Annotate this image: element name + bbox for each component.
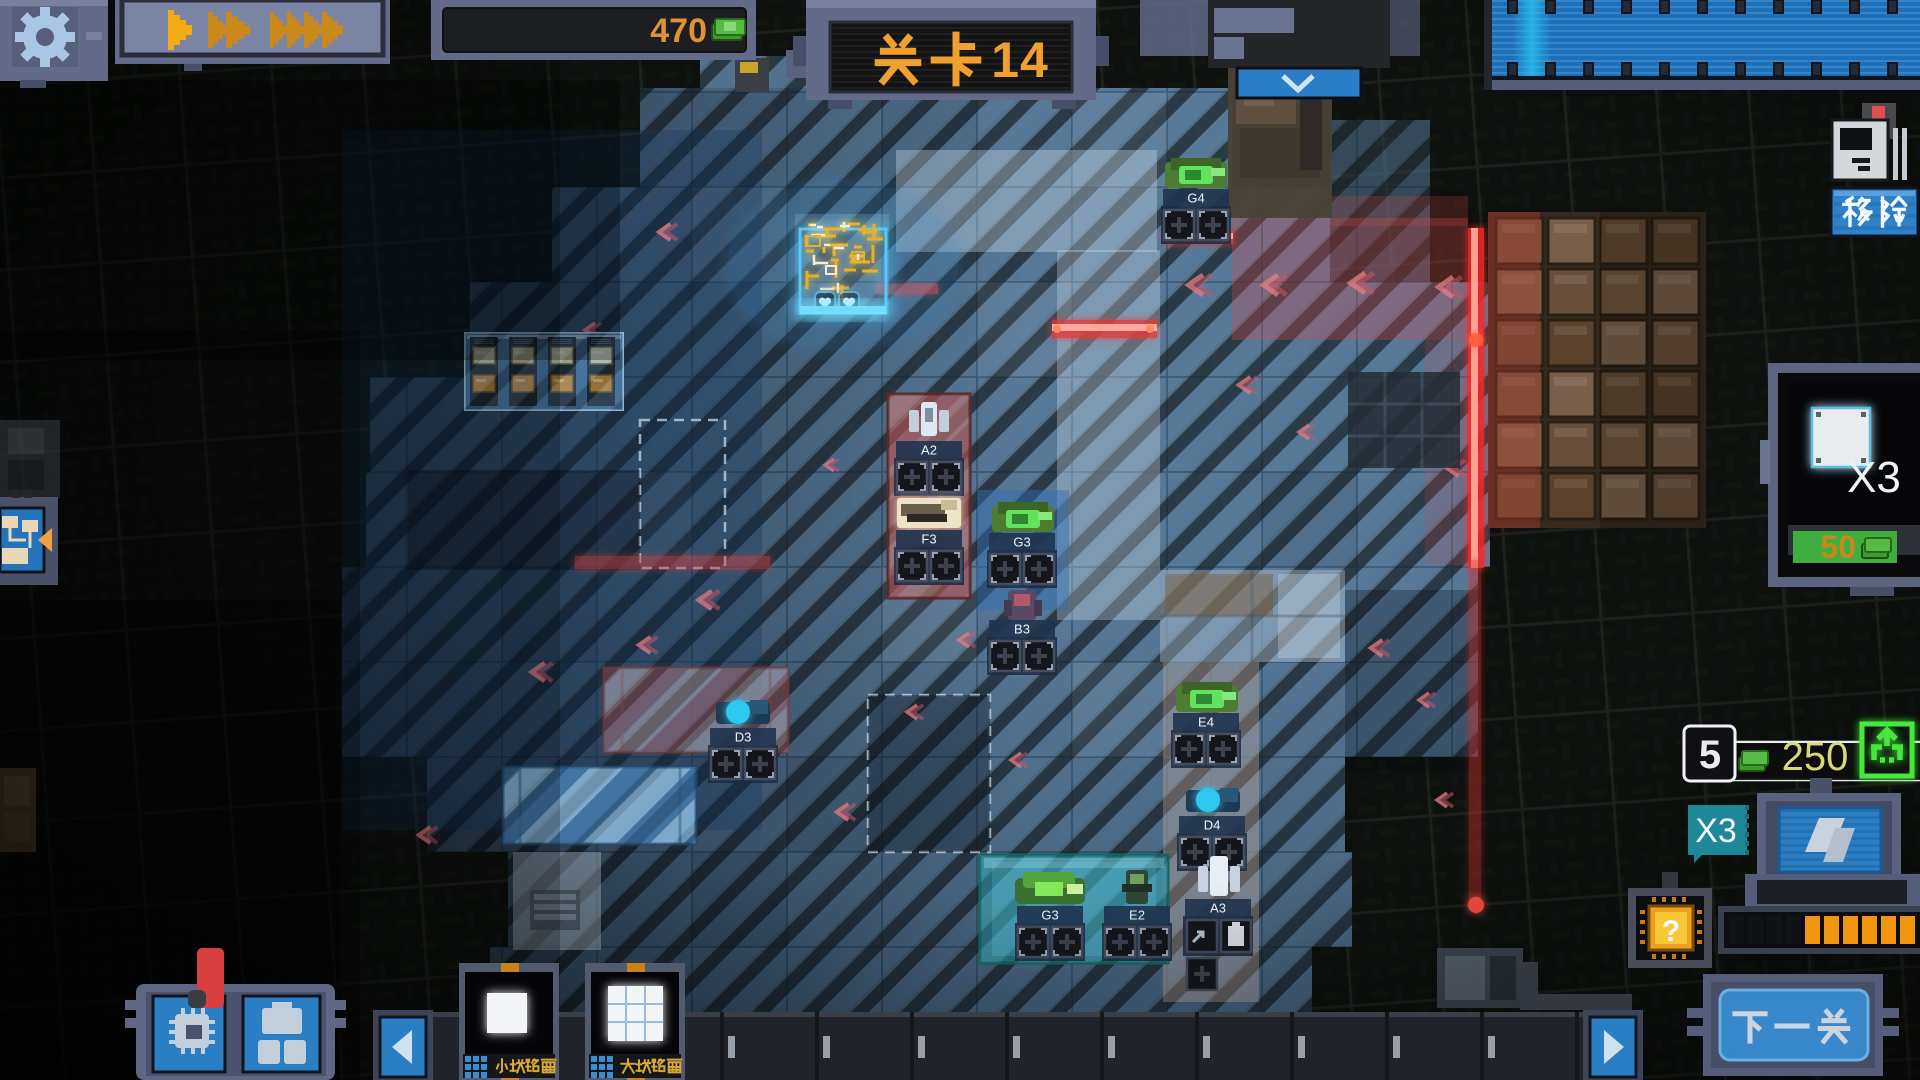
svg-text:5: 5	[1699, 733, 1721, 777]
svg-text:?: ?	[1662, 915, 1680, 948]
svg-text:14: 14	[991, 32, 1049, 88]
svg-text:470: 470	[650, 12, 707, 50]
svg-text:X3: X3	[1695, 812, 1737, 850]
svg-text:X3: X3	[1847, 453, 1901, 502]
svg-text:250: 250	[1782, 735, 1849, 779]
svg-text:50: 50	[1820, 529, 1856, 565]
